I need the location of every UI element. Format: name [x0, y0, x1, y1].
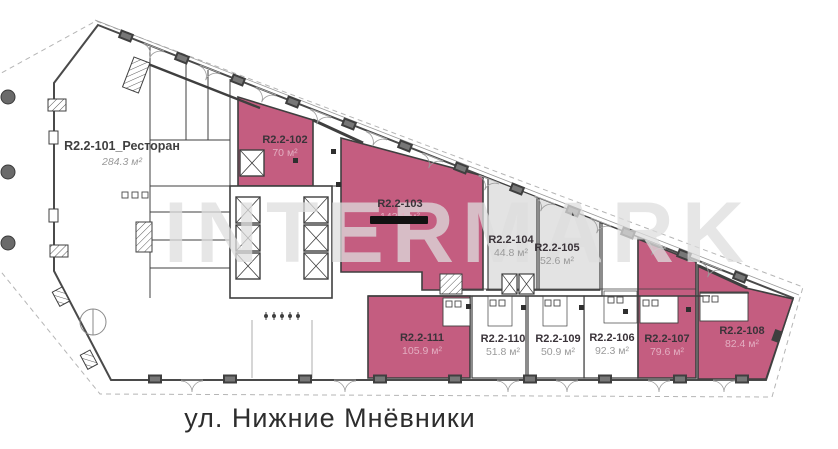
service-lift: [240, 150, 264, 176]
unit-111-id: R2.2-111: [400, 332, 444, 344]
unit-105-id: R2.2-105: [534, 242, 579, 254]
unit-106-id: R2.2-106: [589, 332, 634, 344]
unit-109-id: R2.2-109: [535, 333, 580, 345]
unit-103-id: R2.2-103: [377, 198, 422, 210]
watermark-text: INTERMARK: [164, 185, 752, 281]
unit-101-area: 284.3 м²: [101, 156, 142, 168]
unit-104-area: 44.8 м²: [494, 247, 529, 259]
unit-102-id: R2.2-102: [262, 134, 307, 146]
site-column: [1, 236, 15, 250]
unit-107-area: 79.6 м²: [650, 346, 685, 358]
unit-110-id: R2.2-110: [481, 333, 526, 345]
unit-110-area: 51.8 м²: [486, 346, 521, 358]
floor-plan-page: INTERMARK R2.2-101_Ресторан 284.3 м² R2.…: [0, 0, 838, 449]
site-column: [1, 165, 15, 179]
unit-108-area: 82.4 м²: [725, 338, 760, 350]
street-label: ул. Нижние Мнёвники: [184, 403, 475, 433]
site-column: [1, 90, 15, 104]
unit-108-id: R2.2-108: [719, 325, 764, 337]
unit-105-area: 52.6 м²: [540, 255, 575, 267]
unit-102-area: 70 м²: [272, 147, 298, 159]
unit-106-area: 92.3 м²: [595, 345, 630, 357]
sold-strike-bar: [370, 216, 428, 224]
unit-109-area: 50.9 м²: [541, 346, 576, 358]
unit-101-id: R2.2-101_Ресторан: [64, 139, 180, 153]
unit-111-area: 105.9 м²: [402, 345, 442, 357]
unit-104-id: R2.2-104: [488, 234, 534, 246]
unit-107-id: R2.2-107: [644, 333, 689, 345]
floor-plan-canvas: INTERMARK R2.2-101_Ресторан 284.3 м² R2.…: [0, 0, 838, 449]
